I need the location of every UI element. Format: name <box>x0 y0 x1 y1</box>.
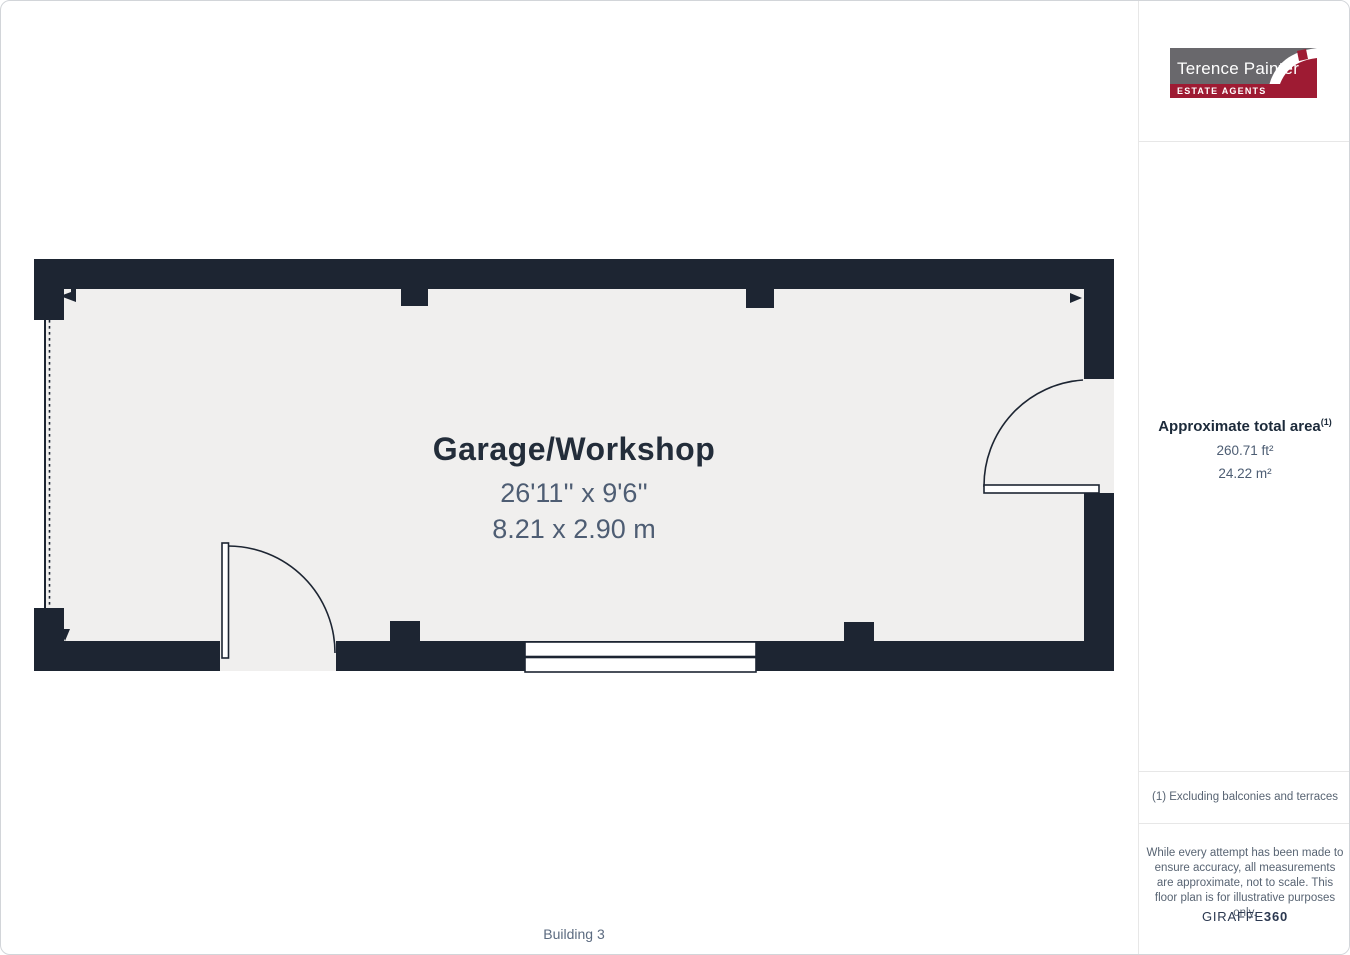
garage-door-opening-floor <box>44 320 64 608</box>
agency-tagline: ESTATE AGENTS <box>1177 86 1266 96</box>
area-value-imperial: 260.71 ft² <box>1139 443 1350 458</box>
area-value-metric: 24.22 m² <box>1139 466 1350 481</box>
window-pane-top <box>525 642 756 657</box>
area-summary: Approximate total area(1) 260.71 ft² 24.… <box>1139 417 1350 481</box>
wall-stub-top-left <box>401 289 428 306</box>
agency-name: Terence Painter <box>1177 59 1297 79</box>
agency-tagline-band: ESTATE AGENTS <box>1170 84 1317 98</box>
giraffe360-brand-suffix: 360 <box>1264 909 1288 924</box>
right-door-leaf <box>984 485 1099 493</box>
bottom-door-opening-floor <box>220 641 336 671</box>
area-footnote: (1) Excluding balconies and terraces <box>1139 791 1350 803</box>
bottom-door-leaf <box>222 543 229 658</box>
sidebar-divider-top <box>1139 141 1350 142</box>
sidebar-divider-lower <box>1139 823 1350 824</box>
garage-door-opening-cut <box>34 320 44 608</box>
agency-logo: Terence Painter ESTATE AGENTS <box>1170 48 1317 98</box>
wall-stub-top-right <box>746 289 774 308</box>
floorplan-page: Garage/Workshop 26'11'' x 9'6'' 8.21 x 2… <box>0 0 1350 955</box>
wall-stub-bottom-left <box>390 621 420 641</box>
wall-stub-bottom-right <box>844 622 874 641</box>
building-label: Building 3 <box>34 926 1114 942</box>
room-floor <box>64 289 1084 641</box>
right-door-opening-floor <box>1084 379 1114 493</box>
area-heading-footnote-ref: (1) <box>1321 417 1332 427</box>
window-pane-bottom <box>525 658 756 673</box>
giraffe360-brand-name: GIRAFFE <box>1202 909 1264 924</box>
area-heading: Approximate total area(1) <box>1139 417 1350 435</box>
giraffe360-brand: GIRAFFE360 <box>1139 909 1350 924</box>
sidebar-divider-middle <box>1139 771 1350 772</box>
sidebar: Terence Painter ESTATE AGENTS Approximat… <box>1138 1 1350 954</box>
